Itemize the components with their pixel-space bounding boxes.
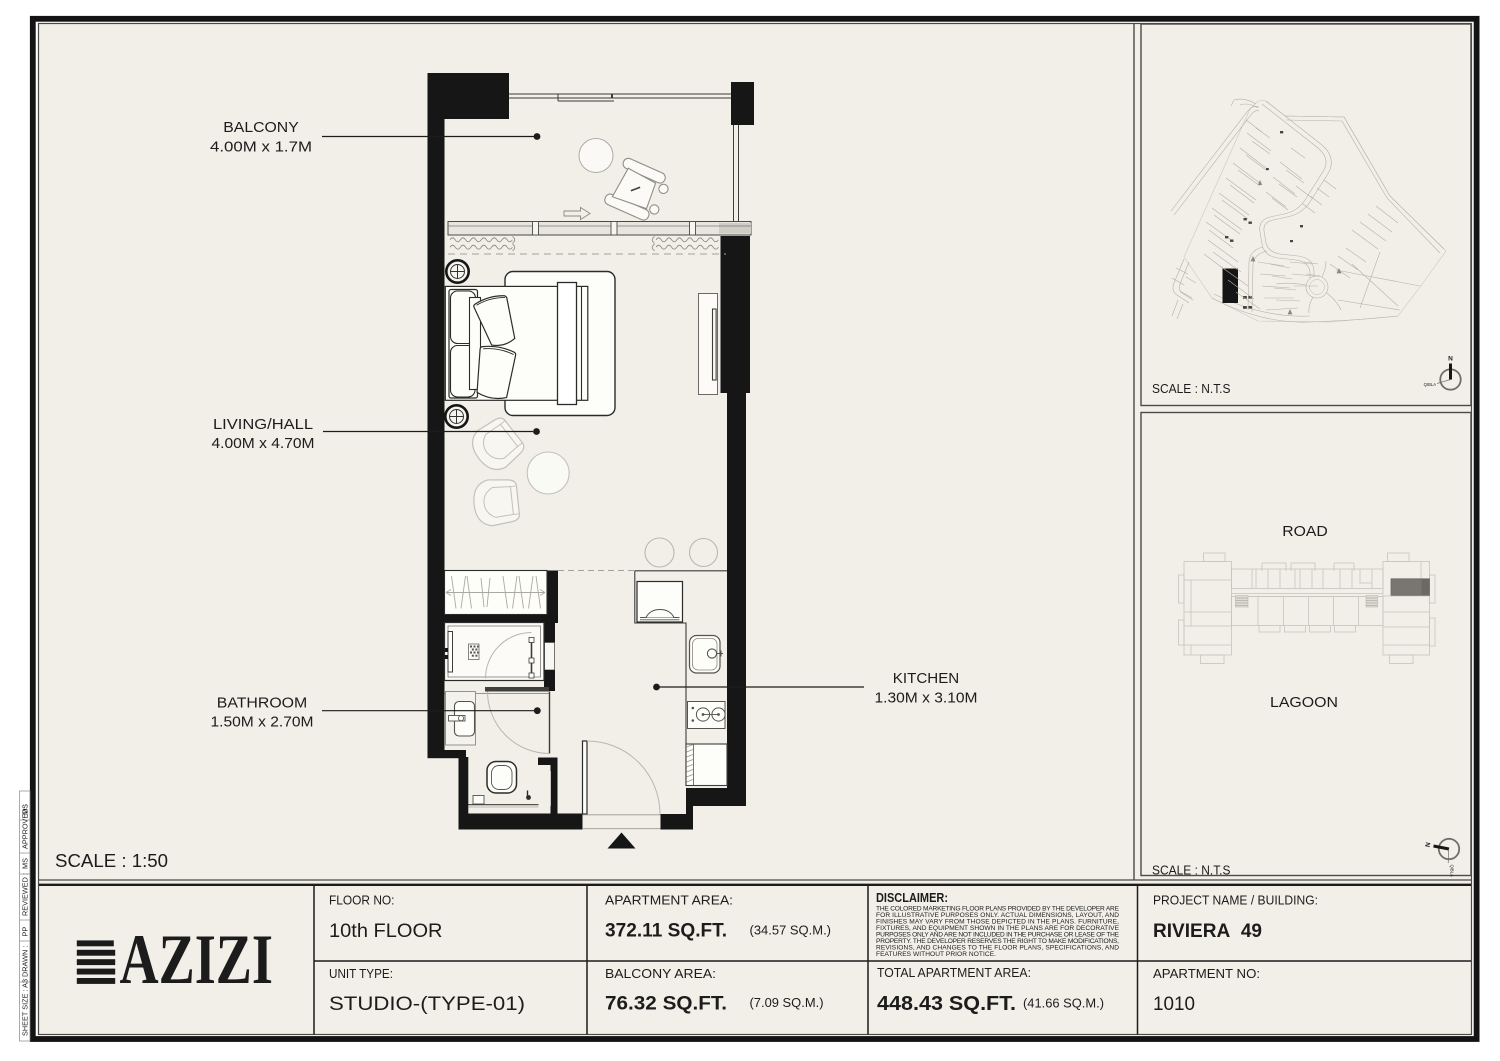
- svg-text:10th FLOOR: 10th FLOOR: [329, 921, 443, 942]
- svg-text:KITCHEN: KITCHEN: [893, 670, 960, 687]
- svg-text:STUDIO-(TYPE-01): STUDIO-(TYPE-01): [329, 994, 525, 1015]
- svg-text:BALCONY: BALCONY: [223, 119, 299, 136]
- svg-text:N: N: [1448, 356, 1453, 363]
- svg-text:BALCONY AREA:: BALCONY AREA:: [605, 966, 716, 981]
- svg-text:SCALE : N.T.S: SCALE : N.T.S: [1152, 382, 1231, 396]
- svg-text:LIVING/HALL: LIVING/HALL: [213, 416, 313, 433]
- svg-text:MS: MS: [21, 804, 30, 815]
- svg-text:4.00M x 4.70M: 4.00M x 4.70M: [212, 435, 315, 452]
- svg-text:4.00M x 1.7M: 4.00M x 1.7M: [210, 139, 312, 156]
- svg-text:TOTAL APARTMENT AREA:: TOTAL APARTMENT AREA:: [877, 965, 1031, 980]
- svg-text:1.50M x 2.70M: 1.50M x 2.70M: [211, 714, 314, 731]
- svg-text:MS: MS: [21, 858, 30, 869]
- svg-text:372.11 SQ.FT.: 372.11 SQ.FT.: [605, 920, 727, 942]
- svg-text:76.32 SQ.FT.: 76.32 SQ.FT.: [605, 993, 727, 1015]
- svg-text:LAGOON: LAGOON: [1270, 694, 1338, 711]
- svg-text:APARTMENT AREA:: APARTMENT AREA:: [605, 893, 733, 908]
- svg-text:DRAWN :: DRAWN :: [21, 946, 30, 977]
- svg-text:QIBLA: QIBLA: [1424, 382, 1437, 387]
- svg-text:448.43 SQ.FT.: 448.43 SQ.FT.: [877, 992, 1016, 1015]
- svg-text:1010: 1010: [1153, 994, 1195, 1015]
- svg-text:1.30M x 3.10M: 1.30M x 3.10M: [875, 690, 978, 707]
- svg-text:PROJECT NAME / BUILDING:: PROJECT NAME / BUILDING:: [1153, 893, 1318, 908]
- svg-text:ROAD: ROAD: [1282, 523, 1328, 540]
- svg-text:DISCLAIMER:: DISCLAIMER:: [876, 890, 948, 905]
- svg-text:FLOOR NO:: FLOOR NO:: [329, 893, 395, 908]
- svg-text:FEATURES WITHOUT PRIOR NOTICE.: FEATURES WITHOUT PRIOR NOTICE.: [876, 951, 996, 958]
- svg-text:(7.09 SQ.M.): (7.09 SQ.M.): [750, 996, 824, 1010]
- svg-text:QIBLA: QIBLA: [1450, 865, 1455, 878]
- svg-text:PP: PP: [21, 927, 30, 937]
- svg-text:(34.57 SQ.M.): (34.57 SQ.M.): [750, 924, 832, 938]
- svg-text:SCALE : N.T.S: SCALE : N.T.S: [1152, 864, 1231, 878]
- svg-text:REVIEWED :: REVIEWED :: [21, 873, 30, 916]
- svg-text:SCALE : 1:50: SCALE : 1:50: [55, 851, 168, 871]
- svg-text:SHEET SIZE : A3: SHEET SIZE : A3: [21, 979, 30, 1036]
- svg-text:BATHROOM: BATHROOM: [217, 695, 308, 712]
- svg-text:APARTMENT NO:: APARTMENT NO:: [1153, 966, 1260, 981]
- svg-text:UNIT TYPE:: UNIT TYPE:: [329, 966, 393, 981]
- svg-text:RIVIERA 49: RIVIERA 49: [1153, 921, 1262, 942]
- svg-text:AZIZI: AZIZI: [120, 921, 274, 999]
- svg-text:(41.66 SQ.M.): (41.66 SQ.M.): [1023, 996, 1104, 1011]
